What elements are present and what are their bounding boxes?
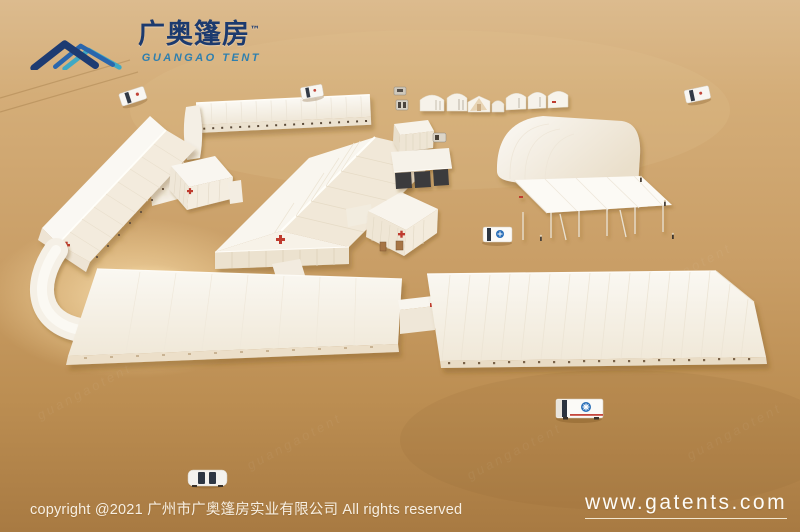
red-cross [519,196,523,198]
scene-render: guangaotent guangaotent guangaotent guan… [0,0,800,532]
desert-ground: guangaotent guangaotent guangaotent guan… [0,0,800,532]
ward-tent-south-west [66,269,402,365]
small-tent-dome [492,101,504,113]
utility-cart [433,133,446,142]
corridor-between-wards [398,296,435,334]
ambulance-canopy [482,227,512,246]
red-cross [552,101,556,103]
logo-mountain-icon [30,30,130,70]
small-tent [506,93,526,110]
tm-mark: ™ [250,25,261,36]
promo-image: guangaotent guangaotent guangaotent guan… [0,0,800,532]
ambulance-south [556,399,603,423]
website-link[interactable]: www.gatents.com [585,491,787,519]
registration-canopy [391,148,452,189]
small-tent [528,92,546,109]
copyright-text: copyright @2021 广州市广奥篷房实业有限公司 All rights… [30,498,462,519]
ward-tent-south-east [427,271,767,368]
cube-tent [393,120,434,152]
logo-text: 广奥篷房™ GUANGAO TENT [138,20,261,64]
logo-chinese-name: 广奥篷房™ [138,20,261,50]
small-tent [447,94,467,112]
logo-english-name: GUANGAO TENT [142,52,261,64]
small-tent [548,91,568,108]
corridor-to-main [228,180,243,204]
small-tent [420,95,444,111]
brand-logo: 广奥篷房™ GUANGAO TENT [30,20,261,70]
car-south-west [188,470,227,489]
